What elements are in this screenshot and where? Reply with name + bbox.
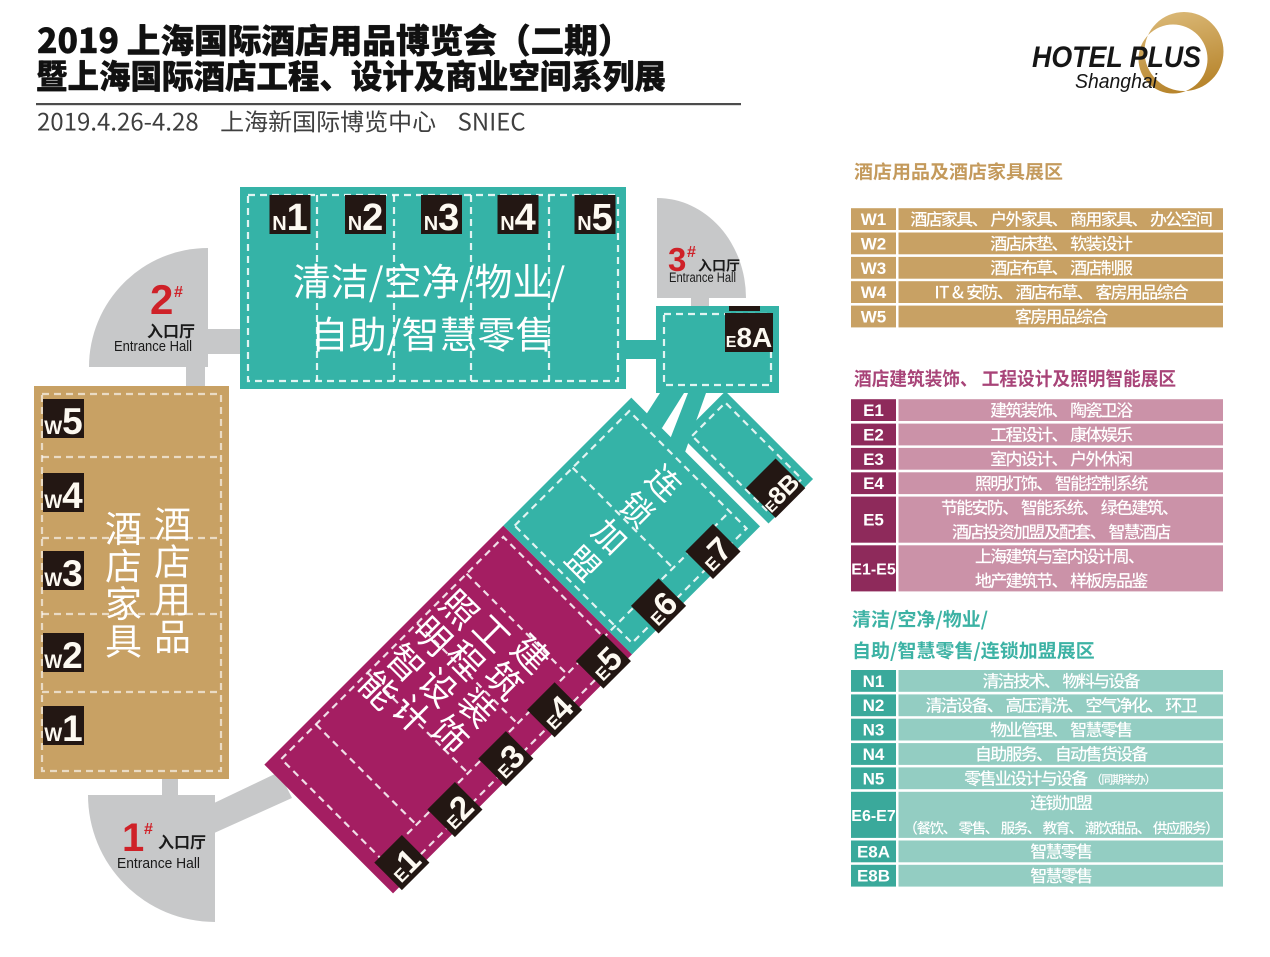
svg-text:#: # [174,284,183,301]
svg-text:N2: N2 [863,696,885,715]
svg-text:Shanghai: Shanghai [1075,71,1158,93]
svg-text:2: 2 [150,276,173,323]
svg-text:1: 1 [122,816,144,860]
svg-text:E8A: E8A [857,842,890,861]
svg-text:E3: E3 [863,450,884,469]
svg-text:E4: E4 [863,474,884,493]
svg-text:W4: W4 [861,283,887,302]
svg-text:W1: W1 [861,210,887,229]
svg-text:W2: W2 [861,234,887,253]
svg-text:Entrance Hall: Entrance Hall [669,270,736,285]
svg-text:N4: N4 [863,745,885,764]
svg-text:E2: E2 [863,425,884,444]
svg-text:W3: W3 [861,259,887,278]
svg-text:Entrance Hall: Entrance Hall [117,855,200,872]
svg-text:E8B: E8B [857,867,890,886]
svg-text:HOTEL PLUS: HOTEL PLUS [1032,41,1201,74]
svg-text:N3: N3 [863,721,885,740]
svg-text:N1: N1 [863,672,885,691]
svg-text:W5: W5 [861,308,887,327]
svg-text:E1-E5: E1-E5 [851,561,896,578]
svg-text:#: # [144,821,153,838]
svg-text:Entrance Hall: Entrance Hall [114,339,192,355]
svg-text:E6-E7: E6-E7 [851,808,896,825]
svg-text:#: # [687,244,696,261]
svg-text:E5: E5 [863,511,884,530]
svg-text:N5: N5 [863,769,885,788]
svg-text:E1: E1 [863,401,884,420]
